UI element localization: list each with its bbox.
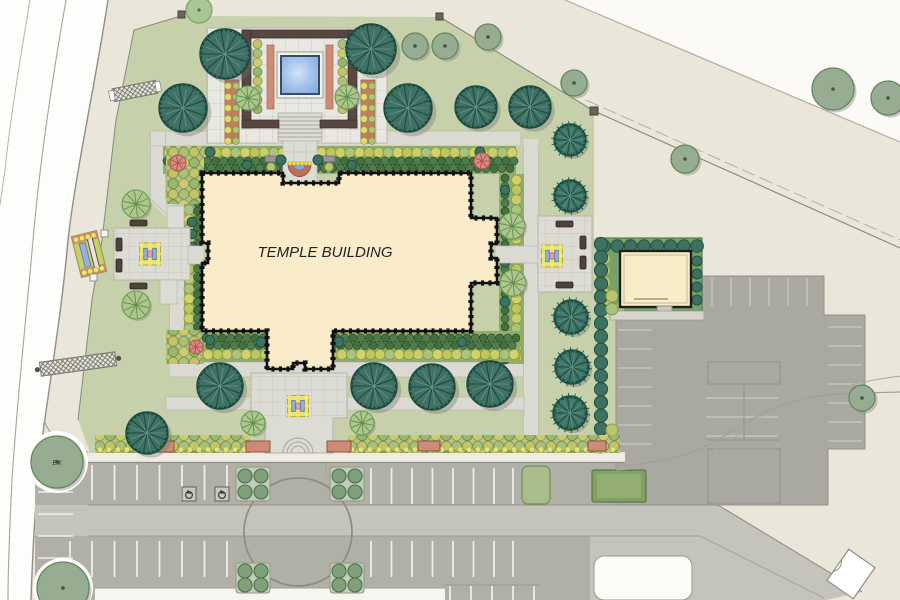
svg-text:TEMPLE BUILDING: TEMPLE BUILDING: [257, 244, 392, 261]
svg-text:EX: EX: [52, 460, 62, 467]
